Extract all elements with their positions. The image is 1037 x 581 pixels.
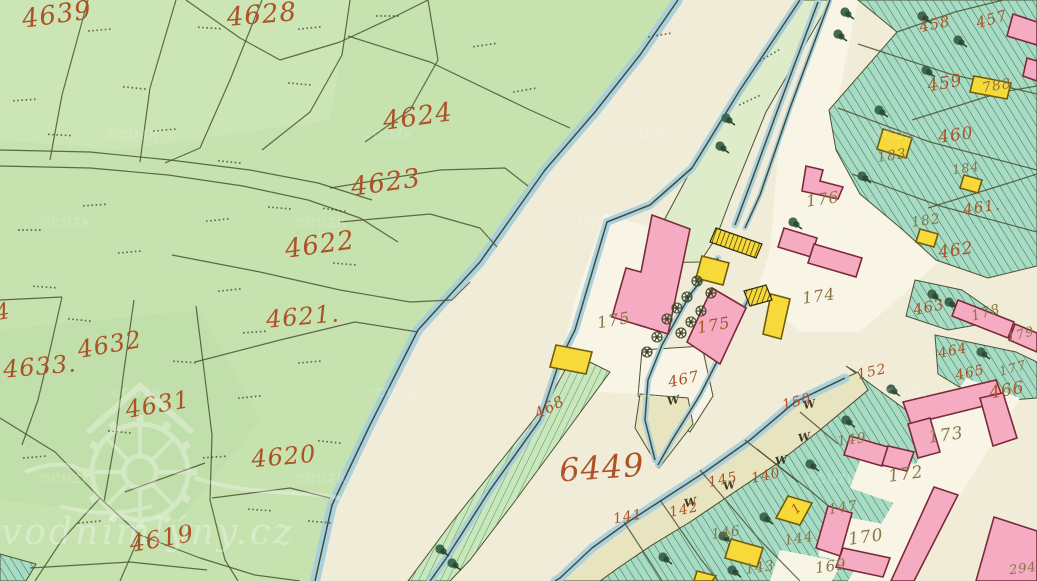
watermark-cuzk: ©CUZK — [107, 127, 160, 142]
watermark-cuzk: ©CUZK — [872, 127, 925, 142]
watermark-cuzk: ©CUZK — [40, 215, 93, 230]
watermark-cuzk: ©CUZK — [875, 385, 928, 400]
watermark-cuzk: ©CUZK — [365, 385, 418, 400]
bridge-hatch-footbridge-upper — [710, 228, 762, 258]
watermark-cuzk: ©CUZK — [617, 127, 670, 142]
watermark-cuzk: ©CUZK — [362, 127, 415, 142]
water-wheel-icon — [672, 303, 682, 313]
water-wheel-icon — [686, 317, 696, 327]
watermark-cuzk: ©CUZK — [805, 471, 858, 486]
watermark-cuzk: ©CUZK — [295, 471, 348, 486]
watermark-cuzk: ©CUZK — [620, 385, 673, 400]
watermark-cuzk: ©CUZK — [550, 215, 603, 230]
water-wheel-icon — [676, 328, 686, 338]
parcel-number-4620: 4620 — [249, 440, 317, 474]
watermark-mill-logo-text: vodnímlýny.cz — [1, 512, 295, 553]
watermark-cuzk: ©CUZK — [805, 215, 858, 230]
watermark-cuzk: ©CUZK — [550, 471, 603, 486]
watermark-cuzk: ©CUZK — [295, 215, 348, 230]
map-viewport[interactable]: WWWWWW463946284624462346224621.46324633.… — [0, 0, 1037, 581]
cadastral-map-canvas[interactable]: WWWWWW463946284624462346224621.46324633.… — [0, 0, 1037, 581]
parcel-number-152: 152 — [856, 361, 888, 383]
